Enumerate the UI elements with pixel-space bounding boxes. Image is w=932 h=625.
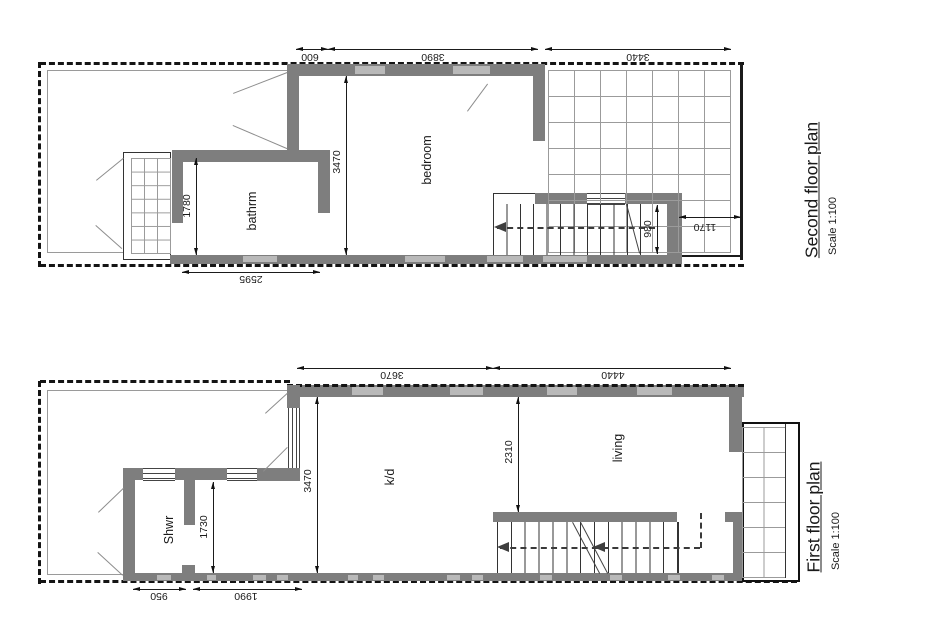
yard-line [47, 574, 123, 575]
dimension-arrow [194, 248, 198, 255]
roof-line [47, 70, 48, 253]
dimension-label: 4440 [601, 369, 624, 381]
dimension-label: 1170 [694, 221, 717, 233]
boundary-line [38, 62, 41, 267]
stair-outline [493, 193, 535, 194]
wall [184, 480, 195, 525]
dimension-line [196, 158, 197, 255]
wall [287, 64, 299, 152]
boundary-line [38, 381, 41, 584]
dimension-arrow [516, 505, 520, 512]
dimension-label: 1990 [234, 590, 257, 602]
dimension-label: 3470 [302, 469, 314, 492]
door-swing-line [96, 158, 124, 181]
dimension-label: 980 [642, 220, 654, 238]
dimension-arrow [344, 248, 348, 255]
dimension-line [317, 397, 318, 573]
door-swing-line [95, 225, 122, 249]
dimension-arrow [179, 587, 186, 591]
window [253, 575, 266, 580]
window [288, 408, 300, 468]
room-label-bathroom: bathrm [245, 192, 259, 231]
stair-walk-arrow [593, 542, 605, 552]
dimension-arrow [493, 366, 500, 370]
dimension-arrow [193, 587, 200, 591]
dimension-label: 2595 [239, 273, 262, 285]
stairs-treads [493, 204, 641, 255]
door-swing-line [97, 552, 123, 576]
dimension-label: 3890 [421, 51, 444, 63]
dimension-arrow [734, 215, 741, 219]
plan-scale-first: Scale 1:100 [830, 512, 842, 570]
door-swing-line [98, 488, 124, 513]
window [207, 575, 216, 580]
door-swing-line [265, 393, 288, 414]
wall [175, 468, 227, 480]
room-label-kitchen-dining: k/d [383, 469, 397, 486]
door-swing-line [467, 84, 488, 112]
roof-line [47, 252, 123, 253]
dimension-arrow [182, 270, 189, 274]
dimension-arrow [315, 566, 319, 573]
dimension-label: 2310 [503, 440, 515, 463]
balcony-tile-grid [742, 427, 786, 578]
dimension-line [328, 49, 538, 50]
window [450, 387, 483, 395]
dimension-arrow [328, 47, 335, 51]
dimension-label: 1730 [198, 515, 210, 538]
terrace-edge [682, 255, 742, 257]
window [712, 575, 724, 580]
window [348, 575, 358, 580]
window [373, 575, 384, 580]
dimension-label: 3440 [626, 51, 649, 63]
dimension-arrow [545, 47, 552, 51]
window [157, 575, 171, 580]
window [540, 575, 552, 580]
wall [123, 468, 143, 480]
dimension-arrow [211, 566, 215, 573]
dimension-label: 1780 [181, 194, 193, 217]
dimension-arrow [321, 47, 328, 51]
dimension-arrow [295, 587, 302, 591]
plan-scale-second: Scale 1:100 [827, 197, 839, 255]
dimension-label: 3470 [331, 150, 343, 173]
window [543, 256, 587, 262]
room-label-bedroom: bedroom [420, 135, 434, 184]
plan-title-second: Second floor plan [802, 122, 823, 258]
wall [123, 468, 135, 578]
dimension-label: 950 [150, 590, 168, 602]
wall [493, 512, 677, 522]
window [405, 256, 445, 262]
dimension-line [518, 397, 519, 512]
wall [287, 385, 300, 408]
window [243, 256, 277, 262]
window [472, 575, 483, 580]
window [352, 387, 383, 395]
wall [725, 512, 742, 522]
boundary-line [40, 380, 290, 383]
dimension-label: 3670 [380, 369, 403, 381]
dimension-line [346, 76, 347, 255]
floor-plan-sheet: 600 3890 3440 1780 3470 2595 980 1170 ba… [0, 0, 932, 625]
dimension-arrow [531, 47, 538, 51]
stair-walk-arrow [497, 542, 509, 552]
dimension-arrow [133, 587, 140, 591]
wall [318, 162, 330, 213]
shaft-grid [131, 158, 171, 254]
room-label-living: living [611, 434, 625, 463]
stair-walk-arrow [494, 222, 506, 232]
door-swing-line [233, 125, 287, 149]
room-label-shower: Shwr [162, 516, 176, 544]
door-swing-line [233, 72, 287, 94]
boundary-line [40, 264, 744, 267]
window [610, 575, 622, 580]
wall [733, 522, 742, 578]
dimension-arrow [724, 366, 731, 370]
dimension-arrow [516, 397, 520, 404]
wall [729, 389, 742, 452]
dimension-label: 600 [301, 51, 319, 63]
dimension-arrow [194, 158, 198, 165]
yard-line [47, 390, 48, 575]
dimension-arrow [211, 482, 215, 489]
dimension-arrow [724, 47, 731, 51]
window [487, 256, 523, 262]
dimension-arrow [655, 247, 659, 254]
wall [287, 64, 545, 76]
dimension-arrow [344, 76, 348, 83]
window [143, 468, 175, 481]
window [547, 387, 577, 395]
window [227, 468, 257, 481]
wall [533, 64, 545, 141]
dimension-line [545, 49, 731, 50]
window [447, 575, 460, 580]
stair-walk-line [700, 513, 702, 548]
window [637, 387, 672, 395]
dimension-line [679, 217, 741, 218]
dimension-arrow [486, 366, 493, 370]
dimension-arrow [297, 366, 304, 370]
dimension-arrow [315, 397, 319, 404]
dimension-arrow [313, 270, 320, 274]
plan-title-first: First floor plan [804, 462, 825, 573]
roof-line [47, 70, 287, 71]
window [355, 66, 385, 74]
dimension-arrow [655, 205, 659, 212]
balcony-line [785, 424, 786, 578]
boundary-line [740, 64, 743, 260]
window [453, 66, 490, 74]
window [668, 575, 680, 580]
dimension-arrow [679, 215, 686, 219]
dimension-line [213, 482, 214, 573]
wall [182, 565, 195, 573]
yard-line [47, 390, 287, 391]
window [277, 575, 288, 580]
